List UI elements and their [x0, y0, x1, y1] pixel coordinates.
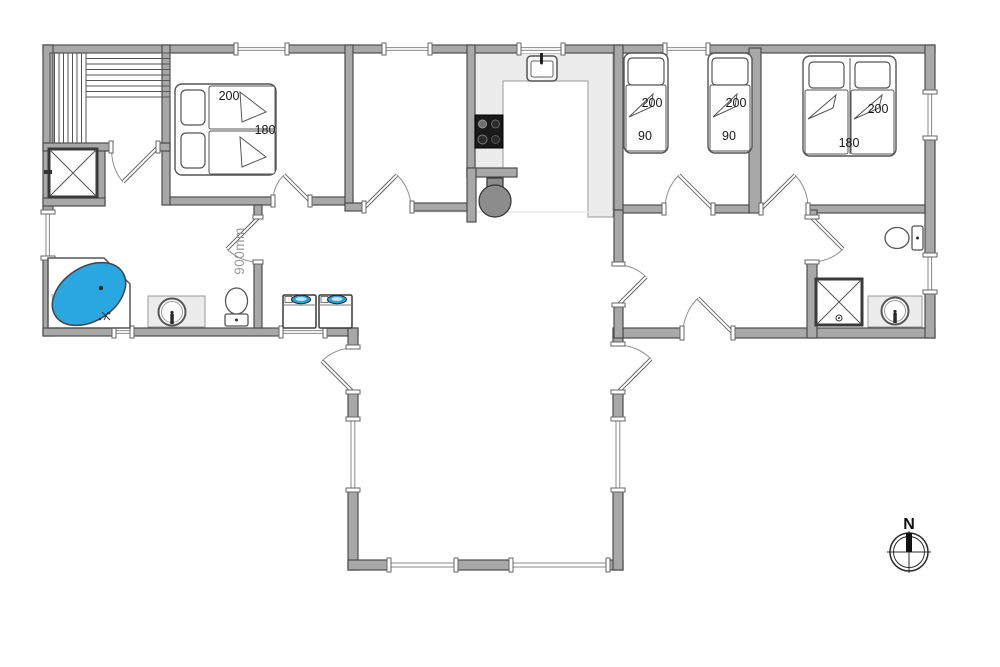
washbasin-right — [882, 298, 909, 325]
sauna-bench — [50, 53, 170, 143]
door-leaves — [123, 147, 843, 392]
bed-single2-length-label: 200 — [726, 96, 747, 110]
bed-single2-width-label: 90 — [722, 129, 736, 143]
compass-north-label: N — [903, 516, 915, 533]
bed-right-length-label: 200 — [868, 102, 889, 116]
door-width-label: 900mm — [232, 227, 247, 275]
washing-machines — [283, 295, 352, 328]
washbasin-left — [159, 299, 186, 326]
kitchen-sink — [527, 53, 557, 81]
tub-faucet-icon — [99, 286, 103, 290]
shower-valve-icon — [44, 170, 52, 174]
bed-single1-width-label: 90 — [638, 129, 652, 143]
toilet-left — [225, 288, 248, 326]
shower-cabin-right — [816, 279, 862, 325]
cooktop — [475, 115, 503, 148]
bed-left-length-label: 200 — [219, 89, 240, 103]
wood-stove — [479, 178, 511, 217]
doors — [112, 142, 843, 392]
compass-needle-icon — [906, 533, 912, 552]
basin-faucet-icon — [893, 313, 897, 323]
bed-left-width-label: 180 — [255, 123, 276, 137]
washing-machine-2 — [319, 295, 352, 328]
bed-right-width-label: 180 — [839, 136, 860, 150]
corner-bathtub — [41, 250, 138, 339]
shower-cabin-left — [44, 149, 97, 197]
compass-rose: N — [887, 516, 931, 573]
washing-machine-1 — [283, 295, 316, 328]
toilet-right — [885, 226, 923, 250]
basin-faucet-icon — [170, 314, 174, 324]
floor-plan: 200 180 200 90 200 90 200 180 900mm N — [0, 0, 1000, 667]
bed-single1-length-label: 200 — [642, 96, 663, 110]
floor-plan-svg: 200 180 200 90 200 90 200 180 900mm N — [0, 0, 1000, 667]
